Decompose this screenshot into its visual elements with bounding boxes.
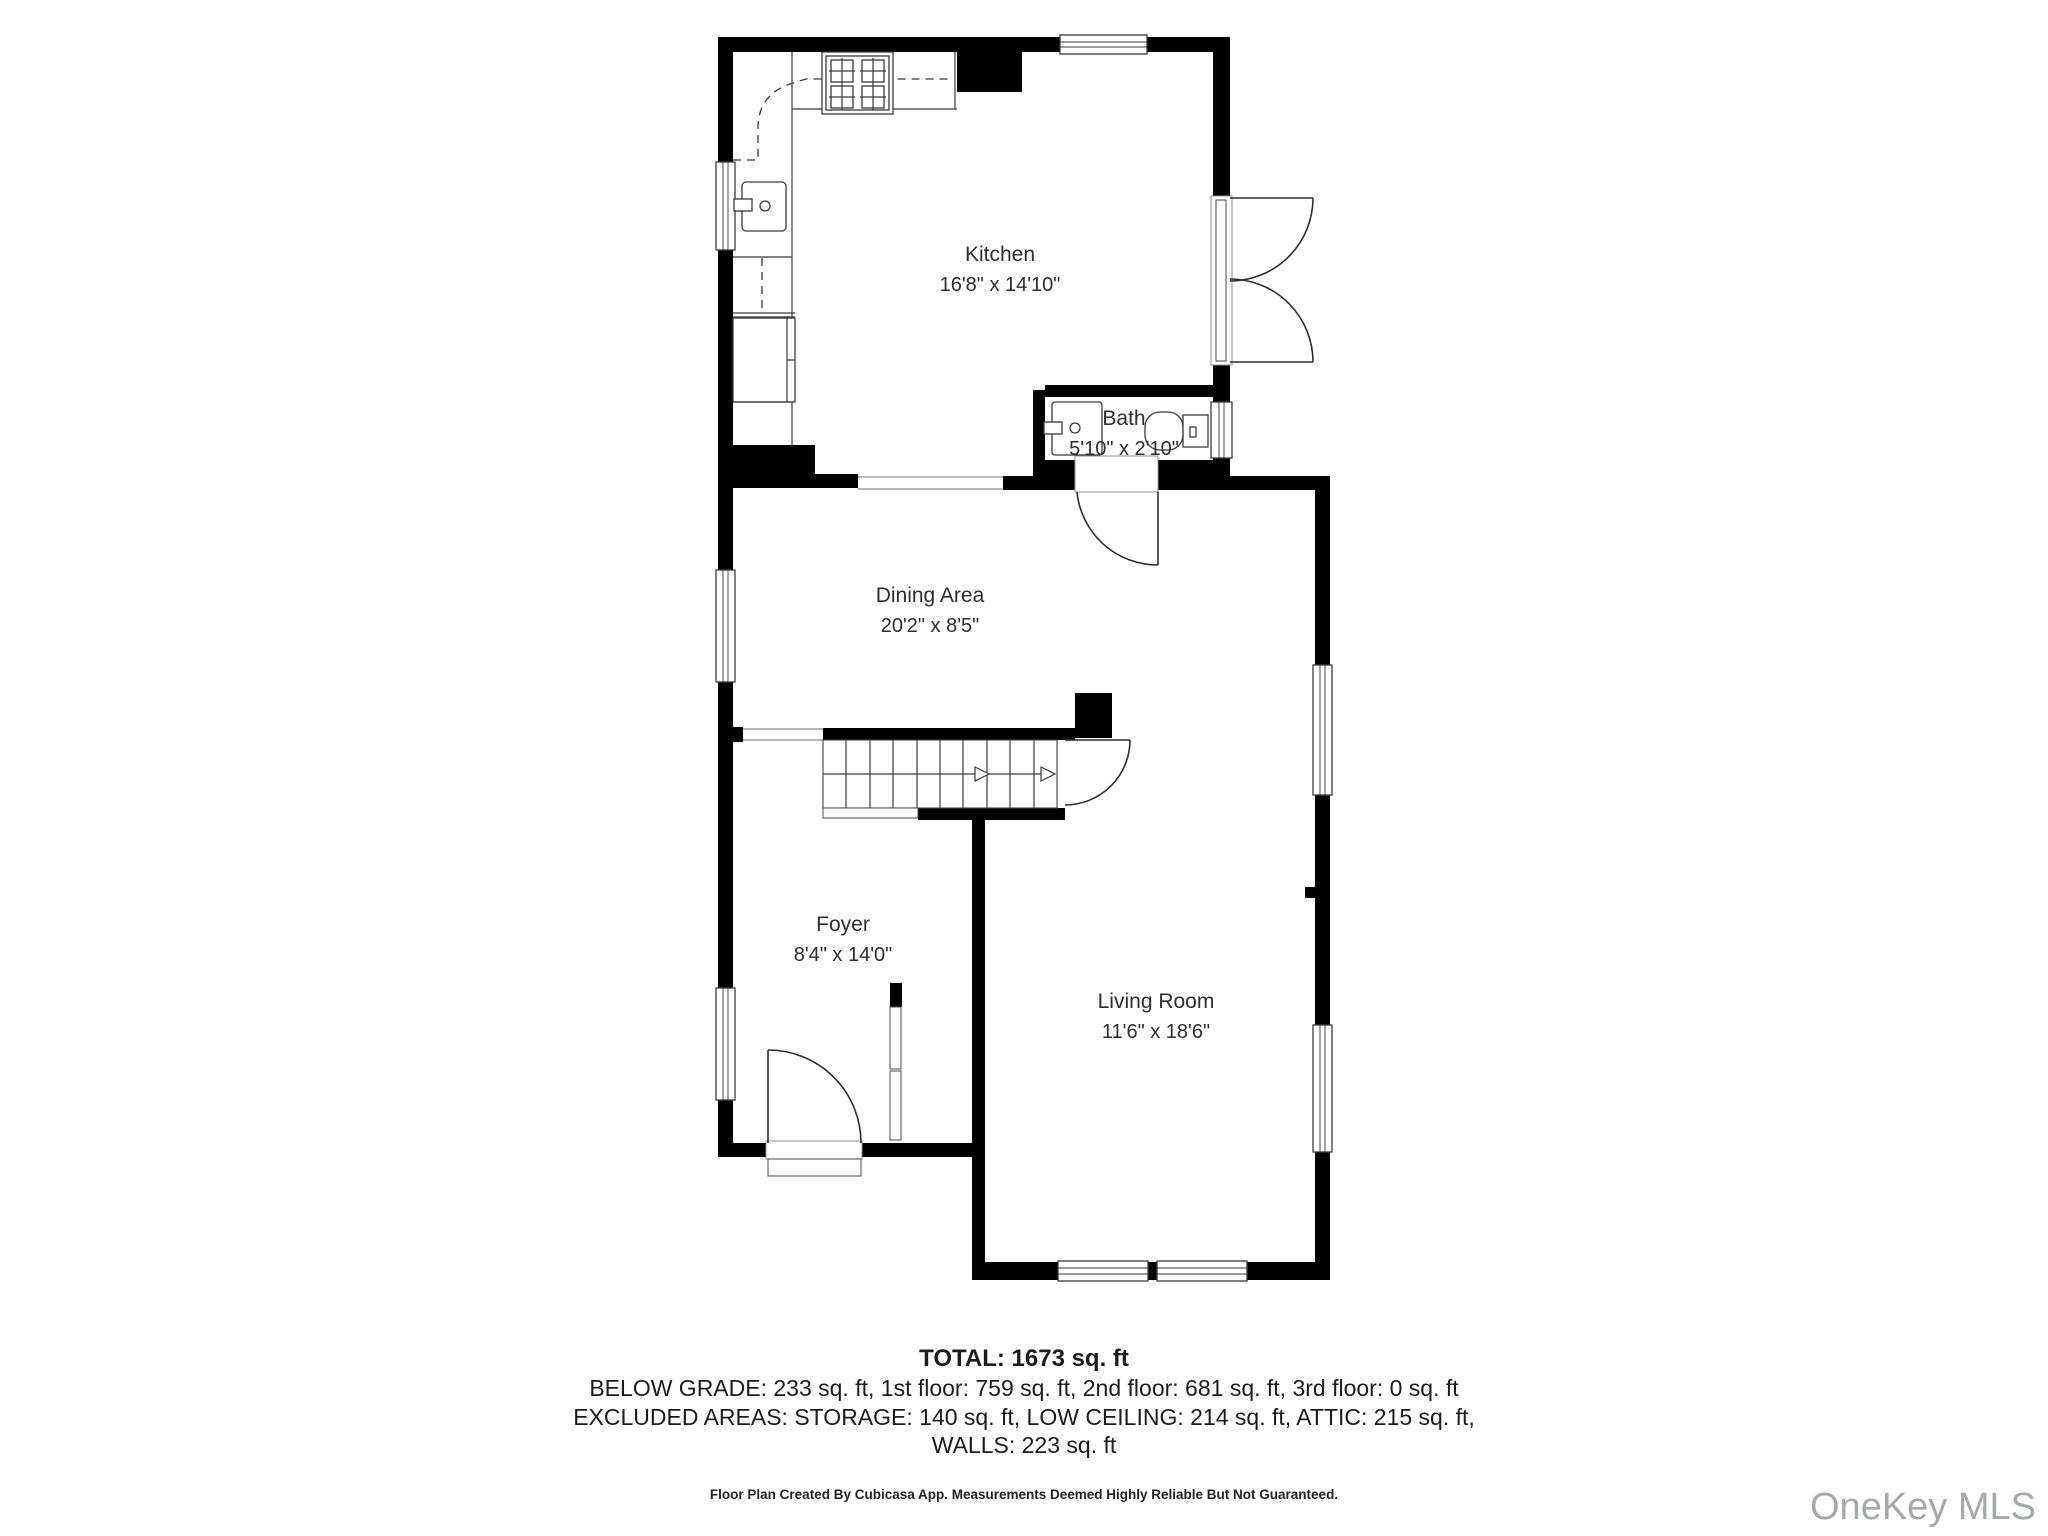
below-grade-text: BELOW GRADE: 233 sq. ft, 1st floor: 759 … (0, 1374, 2048, 1403)
room-dims-kitchen: 16'8" x 14'10" (940, 274, 1061, 296)
entry-door (766, 1050, 862, 1176)
window-divider-bottom (1148, 1262, 1157, 1280)
room-label-bath: Bath (1102, 407, 1145, 430)
walls-area-text: WALLS: 223 sq. ft (0, 1431, 2048, 1460)
refrigerator (733, 318, 795, 402)
interior-wall-foyer-living (972, 817, 985, 1262)
exterior-wall-right-lower (1315, 476, 1330, 1280)
kitchen-sink (734, 182, 786, 231)
disclaimer-text: Floor Plan Created By Cubicasa App. Meas… (0, 1487, 2048, 1502)
stairs-wall-top (823, 728, 1075, 740)
room-dims-living: 11'6" x 18'6" (1102, 1021, 1210, 1043)
kitchen-fixtures (733, 52, 957, 447)
window-bath-right (1211, 402, 1232, 458)
stairs-door-stub-wall (1075, 693, 1112, 738)
window-kitchen-top (1060, 35, 1147, 54)
floor-plan-page: Kitchen 16'8" x 14'10" Bath 5'10" x 2'10… (0, 0, 2048, 1536)
french-doors (1211, 196, 1313, 365)
kitchen-wall-bottom-thick (718, 445, 815, 488)
dining-wall-top-right-seg (1158, 476, 1330, 490)
open-boundaries (743, 477, 1003, 740)
window-dining-left (716, 570, 735, 682)
stairs-wall-top-left-tick (718, 727, 743, 742)
closet-sliding-door (890, 1007, 901, 1140)
stairs-wall-bottom (918, 808, 1065, 820)
staircase (823, 740, 1057, 818)
room-label-kitchen: Kitchen (965, 243, 1035, 266)
doors (766, 196, 1313, 1176)
room-dims-foyer: 8'4" x 14'0" (794, 944, 893, 966)
room-dims-dining: 20'2" x 8'5" (881, 615, 980, 637)
burner (829, 84, 855, 110)
stove (822, 52, 893, 114)
window-living-bottom-right (1157, 1261, 1247, 1281)
window-living-bottom-left (1058, 1261, 1148, 1281)
watermark: OneKey MLS (1810, 1486, 2036, 1529)
dining-wall-top-left-seg (1003, 476, 1075, 490)
floor-plan-svg: Kitchen 16'8" x 14'10" Bath 5'10" x 2'10… (0, 0, 2048, 1536)
burner (860, 84, 886, 110)
window-living-right (1313, 1025, 1332, 1152)
bath-wall-bottom-left (1033, 460, 1075, 476)
room-label-foyer: Foyer (816, 913, 870, 936)
burner (860, 58, 886, 84)
kitchen-wall-bottom-step (815, 474, 858, 488)
area-summary: TOTAL: 1673 sq. ft BELOW GRADE: 233 sq. … (0, 1344, 2048, 1460)
room-dims-bath: 5'10" x 2'10" (1069, 438, 1179, 460)
burner (829, 58, 855, 84)
bath-wall-bottom-right (1158, 460, 1230, 476)
window-dining-right (1313, 665, 1332, 795)
stairs-door (1065, 740, 1130, 805)
excluded-areas-text: EXCLUDED AREAS: STORAGE: 140 sq. ft, LOW… (0, 1403, 2048, 1432)
entry-door-sill (768, 1159, 861, 1176)
window-foyer-left (716, 988, 735, 1100)
closet-wall-stub (890, 983, 902, 1007)
bath-door (1075, 456, 1158, 565)
room-label-living: Living Room (1098, 990, 1215, 1013)
bath-wall-top (1045, 385, 1213, 397)
windows (716, 35, 1332, 1281)
right-wall-notch (1305, 887, 1315, 898)
room-labels: Kitchen 16'8" x 14'10" Bath 5'10" x 2'10… (794, 243, 1215, 1043)
total-area-text: TOTAL: 1673 sq. ft (0, 1344, 2048, 1374)
window-kitchen-left (716, 162, 735, 250)
walls (718, 37, 1330, 1280)
room-label-dining: Dining Area (876, 584, 985, 607)
stairs-lower-landing (823, 808, 918, 818)
exterior-wall-top-stub (957, 37, 1022, 92)
